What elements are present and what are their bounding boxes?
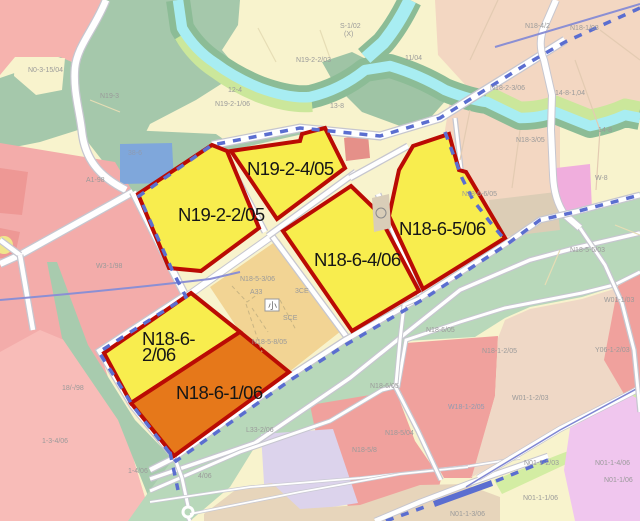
svg-text:小: 小 [268, 301, 277, 311]
svg-text:A33: A33 [250, 289, 263, 296]
svg-text:N19-2-2/03: N19-2-2/03 [296, 57, 331, 64]
svg-text:N18-6-4/06: N18-6-4/06 [314, 249, 401, 270]
svg-text:1-4/06: 1-4/06 [128, 468, 148, 475]
svg-text:N0-3-15/04: N0-3-15/04 [28, 67, 63, 74]
svg-text:18/-/98: 18/-/98 [62, 385, 84, 392]
svg-text:N18-5-3/06: N18-5-3/06 [240, 276, 275, 283]
svg-text:W3-1/98: W3-1/98 [96, 263, 123, 270]
svg-text:N18-5/04: N18-5/04 [385, 430, 414, 437]
svg-text:L33-2/06: L33-2/06 [246, 427, 274, 434]
svg-text:3CE: 3CE [295, 288, 309, 295]
svg-text:W-8: W-8 [595, 175, 608, 182]
svg-text:N18-6/05: N18-6/05 [370, 383, 399, 390]
svg-text:N19-3: N19-3 [100, 93, 119, 100]
svg-text:14-8-1,04: 14-8-1,04 [555, 90, 585, 97]
svg-text:N19-2-1/06: N19-2-1/06 [215, 101, 250, 108]
svg-text:N18-1/03: N18-1/03 [570, 25, 599, 32]
svg-text:N19-2-4/05: N19-2-4/05 [247, 158, 334, 179]
svg-text:4/06: 4/06 [198, 473, 212, 480]
svg-text:N01-1/06: N01-1/06 [604, 477, 633, 484]
svg-text:N18-6-6/05: N18-6-6/05 [462, 191, 497, 198]
svg-text:12-4: 12-4 [228, 87, 242, 94]
svg-text:N18-4/2: N18-4/2 [525, 23, 550, 30]
svg-text:N01-1-4/06: N01-1-4/06 [595, 460, 630, 467]
svg-text:13-8: 13-8 [330, 103, 344, 110]
svg-text:1-3-4/06: 1-3-4/06 [42, 438, 68, 445]
svg-text:SCE: SCE [283, 315, 298, 322]
svg-text:S-1/02: S-1/02 [340, 23, 361, 30]
svg-text:N18-6-5/06: N18-6-5/06 [399, 218, 486, 239]
svg-text:A1-98: A1-98 [86, 177, 105, 184]
svg-text:(X): (X) [344, 31, 353, 38]
svg-text:2/06: 2/06 [142, 344, 176, 365]
svg-text:N18-1-2/05: N18-1-2/05 [482, 348, 517, 355]
svg-text:N18-5-8/05: N18-5-8/05 [252, 339, 287, 346]
svg-text:N18-2-3/06: N18-2-3/06 [490, 85, 525, 92]
svg-text:W18-1-2/05: W18-1-2/05 [448, 404, 485, 411]
svg-text:Y06-1-2/03: Y06-1-2/03 [595, 347, 630, 354]
svg-text:N19-2-2/05: N19-2-2/05 [178, 204, 265, 225]
svg-text:38-6: 38-6 [128, 150, 142, 157]
svg-text:N18-6-1/06: N18-6-1/06 [176, 382, 263, 403]
svg-text:N18-5/8: N18-5/8 [352, 447, 377, 454]
svg-text:N01-1-3/06: N01-1-3/06 [450, 511, 485, 518]
svg-text:W01-1-2/03: W01-1-2/03 [512, 395, 549, 402]
svg-text:N01-1-2/03: N01-1-2/03 [524, 460, 559, 467]
svg-text:11/04: 11/04 [405, 55, 422, 62]
svg-text:N18-6/05: N18-6/05 [426, 327, 455, 334]
svg-text:N18-3/05: N18-3/05 [516, 137, 545, 144]
svg-text:W01-1/03: W01-1/03 [604, 297, 634, 304]
svg-text:14-8: 14-8 [598, 127, 612, 134]
svg-text:N18-5-5/03: N18-5-5/03 [570, 247, 605, 254]
svg-text:N01-1-1/06: N01-1-1/06 [523, 495, 558, 502]
